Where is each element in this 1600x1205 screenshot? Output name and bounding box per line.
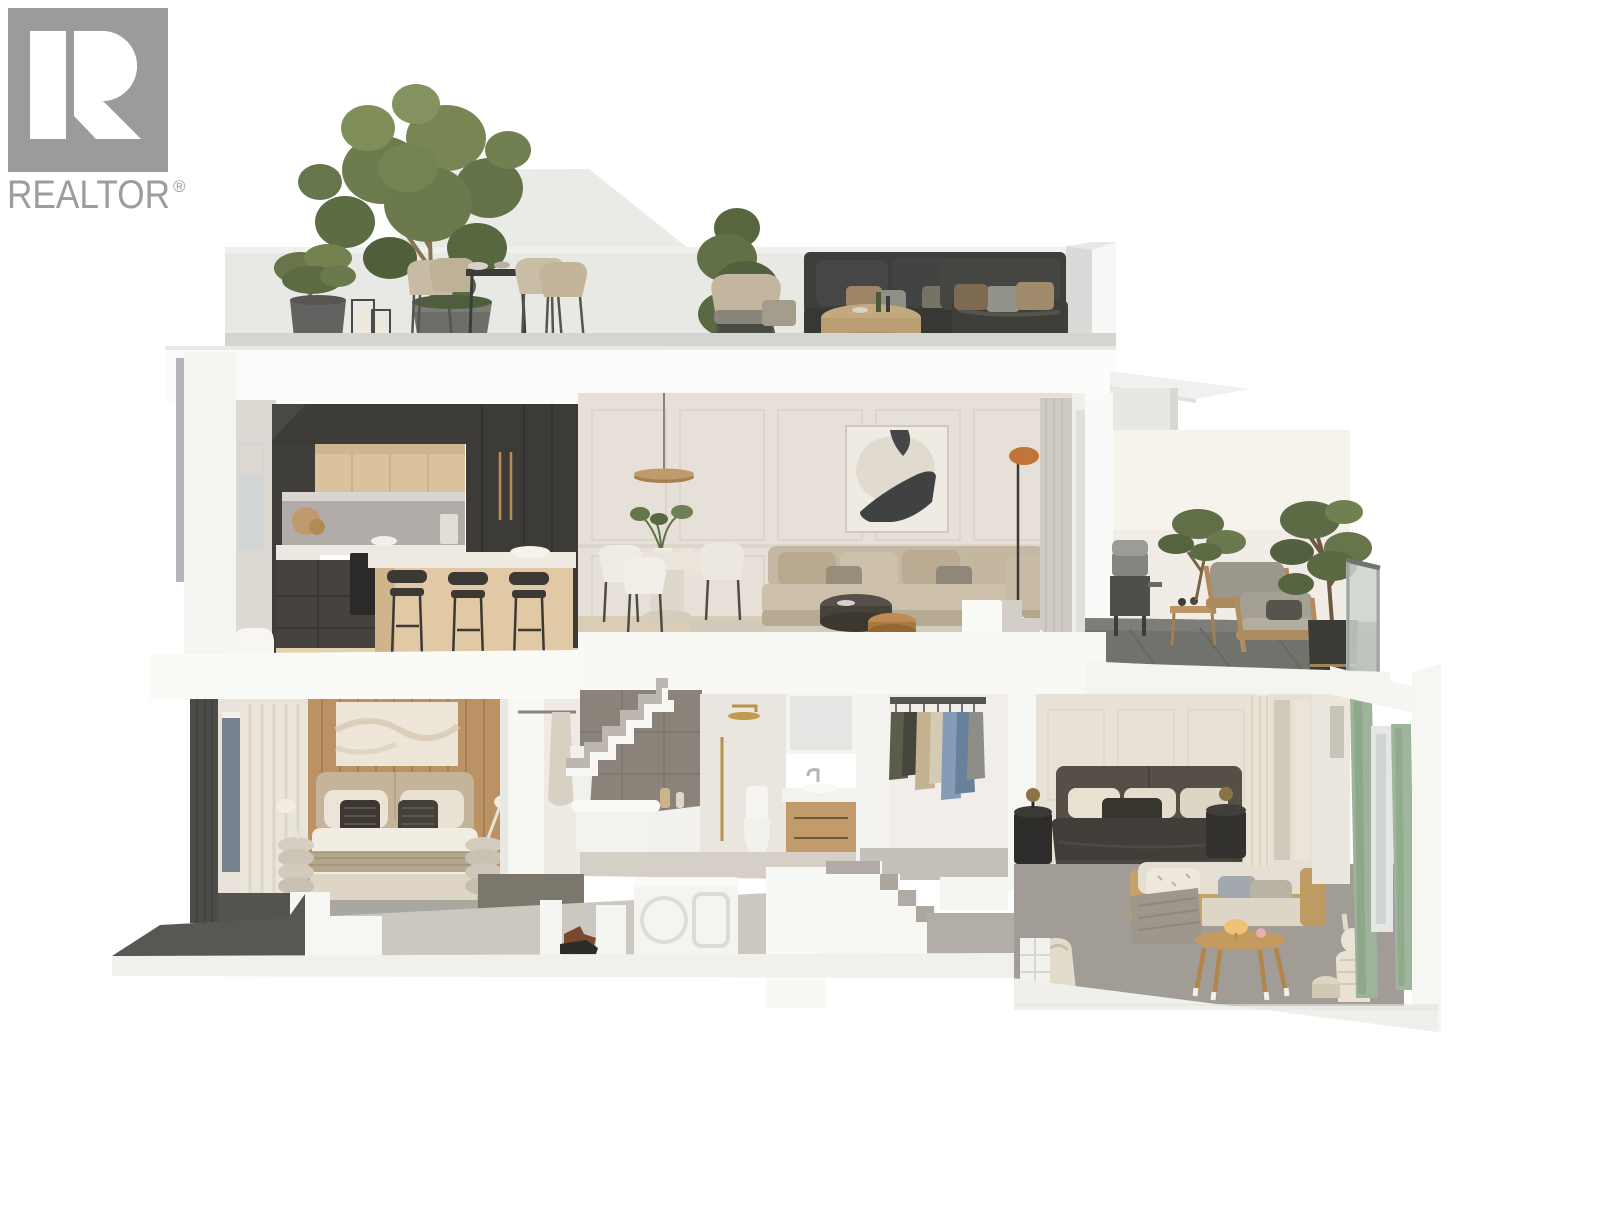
svg-text:REALTOR: REALTOR [7,173,170,217]
svg-text:®: ® [173,177,186,196]
